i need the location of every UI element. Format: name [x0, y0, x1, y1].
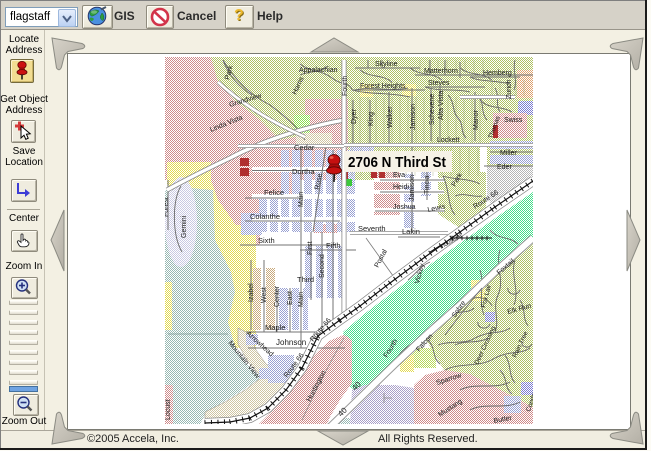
svg-text:Lakin: Lakin: [402, 227, 420, 236]
svg-text:Forest Heights: Forest Heights: [360, 83, 406, 90]
svg-text:Eder: Eder: [497, 164, 512, 171]
svg-text:Felice: Felice: [264, 188, 284, 197]
svg-text:Lockett: Lockett: [437, 137, 460, 144]
svg-text:Schevene: Schevene: [429, 94, 436, 125]
svg-text:Dyer: Dyer: [351, 109, 358, 124]
svg-text:2706 N Third St: 2706 N Third St: [348, 155, 446, 171]
svg-text:Walker: Walker: [387, 106, 394, 128]
svg-text:Third: Third: [297, 275, 314, 284]
svg-text:Matterhorn: Matterhorn: [424, 68, 458, 75]
svg-text:Steves: Steves: [428, 80, 450, 87]
svg-text:Fourth: Fourth: [342, 76, 349, 96]
svg-text:Heidi: Heidi: [393, 184, 409, 191]
svg-text:Alta Vista: Alta Vista: [438, 90, 445, 120]
svg-text:Colanthe: Colanthe: [250, 212, 280, 221]
svg-text:West: West: [261, 287, 268, 303]
svg-text:Manor: Manor: [473, 109, 480, 130]
svg-text:Swiss: Swiss: [504, 117, 523, 124]
svg-text:East: East: [287, 291, 294, 305]
svg-text:Cedar: Cedar: [294, 143, 315, 152]
svg-text:King: King: [368, 112, 375, 126]
svg-text:Joshua: Joshua: [393, 204, 416, 211]
svg-text:Hemberg: Hemberg: [483, 70, 512, 77]
svg-text:Fifth: Fifth: [326, 241, 341, 250]
svg-text:Skyline: Skyline: [375, 61, 398, 68]
svg-text:Locust: Locust: [165, 399, 172, 420]
svg-text:Jamison: Jamison: [410, 104, 417, 130]
svg-text:Second: Second: [319, 254, 326, 278]
svg-text:Center: Center: [274, 285, 281, 307]
svg-text:First: First: [307, 241, 314, 255]
svg-text:Eva: Eva: [393, 172, 405, 179]
svg-text:Sixth: Sixth: [258, 236, 275, 245]
svg-text:Appalachian: Appalachian: [299, 67, 338, 74]
svg-text:Seventh: Seventh: [358, 224, 386, 233]
svg-text:Izabel: Izabel: [248, 283, 255, 302]
svg-text:Johnson: Johnson: [276, 338, 306, 347]
svg-text:Maple: Maple: [265, 323, 285, 332]
svg-text:Miller: Miller: [500, 150, 517, 157]
svg-text:Forest: Forest: [165, 197, 170, 217]
svg-text:Jamison: Jamison: [409, 175, 416, 201]
svg-text:Tincia: Tincia: [424, 175, 431, 194]
svg-text:Dortha: Dortha: [292, 167, 315, 176]
svg-text:Zurich: Zurich: [506, 79, 513, 99]
svg-text:Gemini: Gemini: [181, 215, 188, 238]
svg-text:Main: Main: [298, 192, 305, 207]
svg-text:Main: Main: [298, 292, 305, 307]
